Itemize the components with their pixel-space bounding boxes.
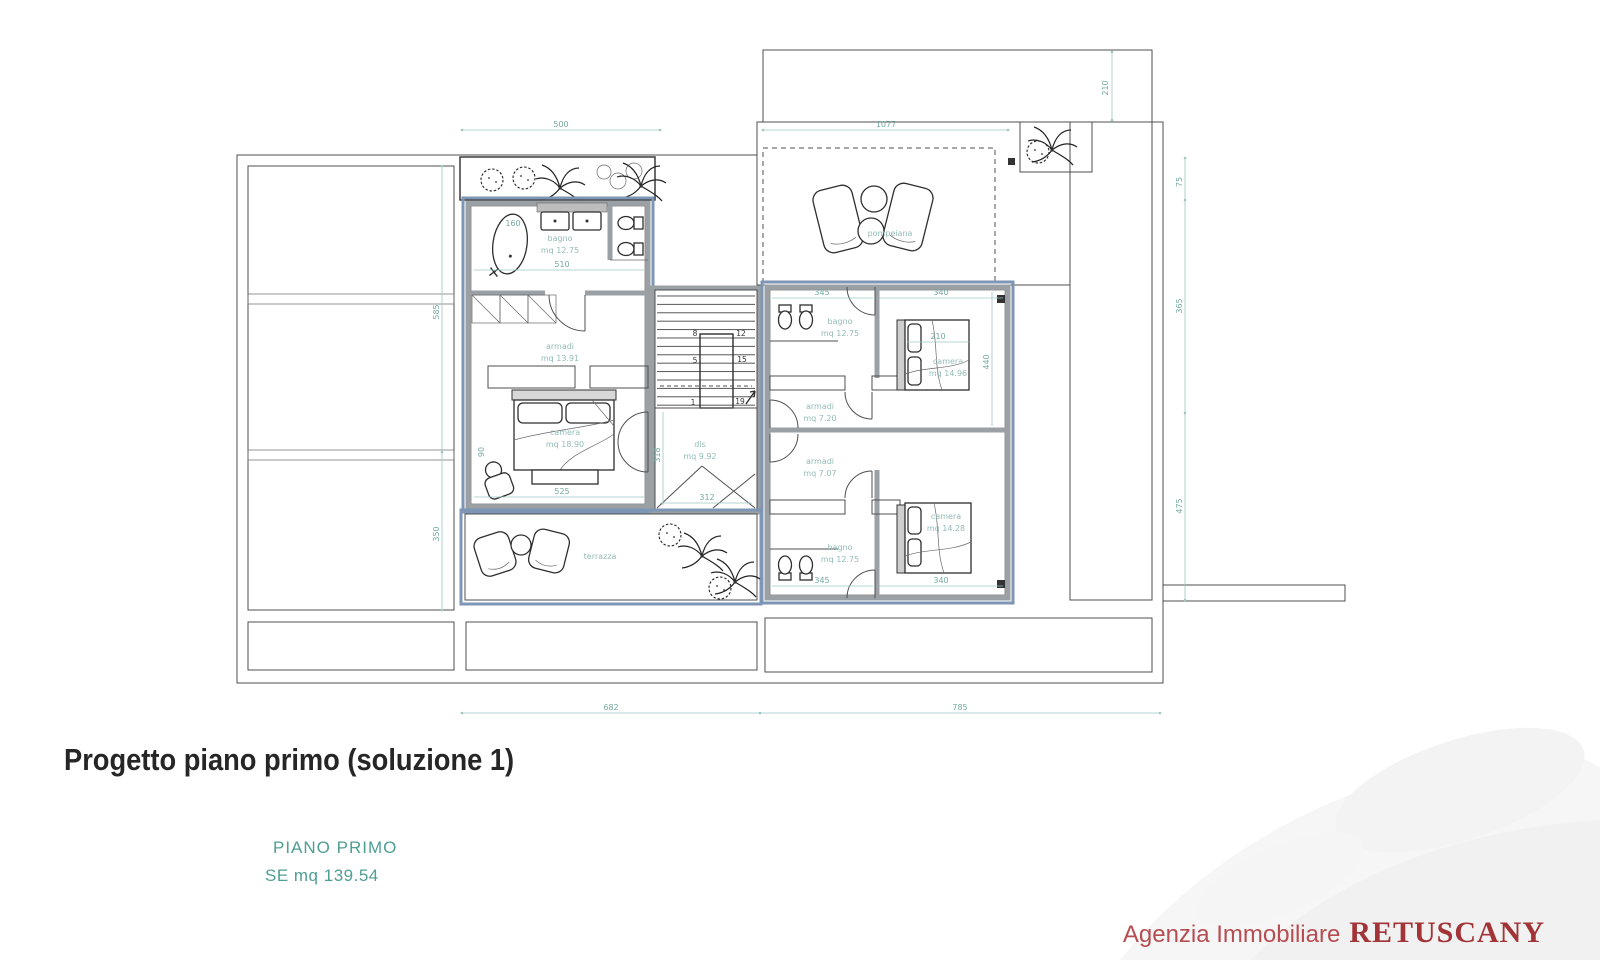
dim-label: 318 (653, 447, 662, 462)
room-label-armadi-b: armadi (806, 402, 834, 411)
stair-number: 15 (737, 355, 747, 364)
room-area-bagno-c: mq 12.75 (821, 555, 859, 564)
lounge-chair (881, 181, 935, 253)
stair-number: 12 (736, 329, 746, 338)
dim-label: 475 (1175, 498, 1184, 513)
wardrobe-comb (770, 376, 845, 390)
right-extension-bar (1163, 585, 1345, 601)
room-label-armadi-a: armadi (546, 342, 574, 351)
toilet (618, 217, 643, 230)
room-label-camera-a: camera (550, 428, 580, 437)
floor-area: SE mq 139.54 (265, 866, 379, 886)
dim-label: 1077 (876, 120, 896, 129)
toilet (800, 305, 813, 329)
page-title: Progetto piano primo (soluzione 1) (64, 742, 514, 778)
round-table (861, 186, 887, 212)
stair-number: 1 (691, 398, 696, 407)
double-bed (897, 320, 969, 390)
room-label-camera-b: camera (933, 357, 963, 366)
dim-label: 585 (432, 304, 441, 319)
dim-label: 345 (814, 576, 829, 585)
pompeiana-area: pompeiana (757, 122, 1070, 285)
unit-a: bagno mq 12.75 armadi mq 13.91 (463, 198, 653, 512)
floor-label: PIANO PRIMO (273, 838, 397, 858)
pompeiana-dashed-zone (763, 148, 995, 285)
top-planter (460, 157, 666, 203)
closet-hatch (472, 295, 556, 323)
room-label-terrazza: terrazza (584, 552, 617, 561)
double-door-swing (618, 412, 648, 472)
room-area-bagno-a: mq 12.75 (541, 246, 579, 255)
room-label-pompeiana: pompeiana (868, 229, 913, 238)
room-label-bagno-c: bagno (827, 543, 852, 552)
corner-marker (997, 295, 1005, 303)
room-area-camera-b: mq 14.96 (929, 369, 967, 378)
top-pergola-strip (763, 50, 1152, 122)
stair-number: 19 (735, 397, 745, 406)
terrazza-area: terrazza (461, 510, 761, 604)
dim-label: 365 (1175, 298, 1184, 313)
room-area-dis: mq 9.92 (683, 452, 716, 461)
stair-number: 5 (693, 356, 698, 365)
room-label-camera-c: camera (931, 512, 961, 521)
dim-label: 75 (1175, 177, 1184, 187)
dim-label: 440 (982, 354, 991, 369)
double-bed (512, 390, 616, 484)
terrace-chair (527, 527, 572, 575)
left-bottom-panel (248, 622, 454, 670)
dim-label: 90 (477, 447, 486, 457)
dim-label: 210 (930, 332, 945, 341)
room-area-armadi-b: mq 7.20 (803, 414, 836, 423)
round-table (511, 535, 531, 555)
stair-number: 8 (693, 329, 698, 338)
dim-label: 350 (432, 526, 441, 541)
wardrobe-comb (590, 366, 648, 388)
toilet (800, 556, 813, 580)
room-area-camera-a: mq 18.90 (546, 440, 584, 449)
agency-branding: Agenzia Immobiliare RETUSCANY (1123, 916, 1545, 950)
door-swing (847, 570, 875, 598)
wardrobe-comb (872, 376, 900, 390)
room-area-bagno-b: mq 12.75 (821, 329, 859, 338)
door-swing (847, 287, 875, 315)
toilet (779, 305, 792, 329)
room-area-camera-c: mq 14.28 (927, 524, 965, 533)
staircase-block: 8 12 5 15 1 19 dis mq 9.92 (653, 288, 759, 512)
terrace-chair (472, 529, 519, 578)
room-area-armadi-a: mq 13.91 (541, 354, 579, 363)
toilet (779, 556, 792, 580)
dim-label: 785 (952, 703, 967, 712)
vanity-double-sink (537, 203, 607, 230)
dim-label: 160 (505, 219, 520, 228)
wardrobe-comb (770, 500, 845, 514)
lounge-chair (811, 183, 865, 255)
dim-label: 525 (554, 487, 569, 496)
center-bottom-panel (466, 622, 757, 670)
dim-label: 340 (933, 576, 948, 585)
unit-b: bagno mq 12.75 armadi mq 7.20 (762, 282, 1013, 603)
bed-bench (532, 470, 598, 484)
dim-label: 210 (1101, 80, 1110, 95)
armchair (479, 458, 516, 501)
room-label-bagno-b: bagno (827, 317, 852, 326)
dim-label: 682 (603, 703, 618, 712)
door-swing (845, 471, 872, 498)
dimension-lines: 500 1077 210 75 365 475 585 350 682 785 … (432, 51, 1186, 715)
bottom-pergola-strip (765, 618, 1152, 672)
right-pergola-strip (1070, 122, 1152, 600)
bidet (618, 243, 643, 256)
door-swing (845, 392, 872, 419)
wardrobe-comb (488, 366, 575, 388)
corner-marker (1008, 158, 1015, 165)
room-label-bagno-a: bagno (547, 234, 572, 243)
dim-label: 340 (933, 288, 948, 297)
dim-label: 345 (814, 288, 829, 297)
page: pompeiana (0, 0, 1600, 960)
floor-plan-drawing: pompeiana (0, 0, 1600, 960)
agency-logo-text: RETUSCANY (1349, 916, 1545, 950)
room-label-armadi-c: armadi (806, 457, 834, 466)
planter-box (1020, 122, 1092, 172)
room-label-dis: dis (694, 440, 705, 449)
dim-label: 312 (699, 493, 714, 502)
corner-marker (997, 580, 1005, 588)
agency-prefix: Agenzia Immobiliare (1123, 921, 1340, 949)
dim-label: 500 (553, 120, 568, 129)
door-swing (549, 295, 585, 331)
room-area-armadi-c: mq 7.07 (803, 469, 836, 478)
dim-label: 510 (554, 260, 569, 269)
